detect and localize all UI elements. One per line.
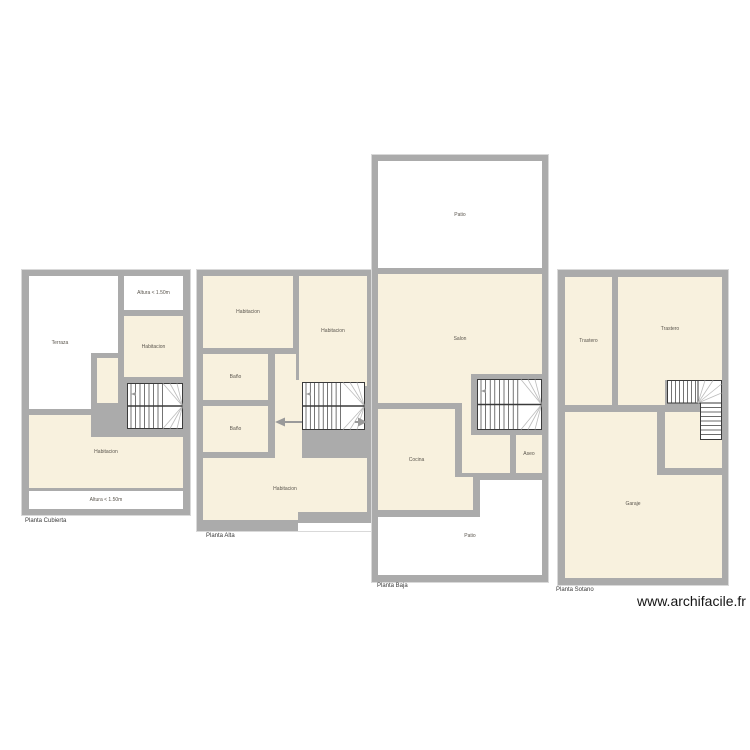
room-bano-2: Baño (203, 406, 268, 452)
room-label-garaje: Garaje (625, 501, 640, 507)
room-trastero-right-ext (618, 380, 665, 405)
floorplan-canvas: { "watermark": "www.archifacile.fr", "co… (0, 0, 750, 750)
room-label-aseo: Aseo (523, 451, 534, 457)
room-habitacion-tl: Habitacion (203, 276, 293, 348)
floorplan-planta-baja: Patio Salon Cocina Aseo Patio (372, 155, 548, 582)
room-terraza: Terraza (29, 276, 91, 409)
room-label-salon: Salon (454, 336, 467, 342)
room-corridor (462, 403, 471, 435)
room-patio-bottom-right (480, 480, 542, 575)
room-label-bano-2: Baño (230, 426, 242, 432)
room-habitacion-right: Habitacion (124, 316, 183, 377)
wall-step (298, 512, 372, 523)
room-label-bano-1: Baño (230, 374, 242, 380)
room-trastero-left: Trastero (565, 277, 612, 405)
room-altura-top: Altura < 1.50m (124, 276, 183, 310)
room-garaje-right (657, 475, 722, 578)
room-cocina-ext (455, 477, 473, 510)
room-label-cocina: Cocina (409, 457, 425, 463)
plan-title-sotano: Planta Sotano (556, 587, 594, 593)
staircase-l (667, 380, 722, 440)
room-hall (462, 435, 510, 473)
plan-title-alta: Planta Alta (206, 533, 235, 539)
floorplan-planta-alta: Habitacion Habitacion Baño Baño Habitaci… (197, 270, 372, 531)
room-label-terraza: Terraza (52, 340, 69, 346)
room-label-patio-top: Patio (454, 212, 465, 218)
room-label-habitacion-main: Habitacion (273, 486, 297, 492)
room-habitacion-tr: Habitacion (299, 276, 367, 386)
room-patio-bottom-left (378, 517, 480, 575)
room-corridor (97, 358, 118, 403)
watermark: www.archifacile.fr (637, 593, 746, 609)
room-cocina: Cocina (378, 409, 455, 510)
room-label-habitacion-tr: Habitacion (321, 328, 345, 334)
floorplan-planta-sotano: Trastero Trastero Garaje (558, 270, 728, 585)
room-label-habitacion-tl: Habitacion (236, 309, 260, 315)
room-label-garaje-wrap: Garaje (603, 498, 663, 510)
room-label-habitacion-right: Habitacion (142, 344, 166, 350)
room-corridor-upper (275, 354, 296, 380)
room-patio-top: Patio (378, 161, 542, 268)
floorplan-planta-cubierta: Terraza Altura < 1.50m Habitacion Habita… (22, 270, 190, 515)
room-aseo: Aseo (516, 435, 542, 473)
room-label-altura-top: Altura < 1.50m (137, 290, 170, 296)
staircase-u (477, 379, 542, 430)
room-label-altura-bottom: Altura < 1.50m (90, 497, 123, 503)
room-label-trastero-left: Trastero (579, 338, 597, 344)
room-label-patio-bottom: Patio (464, 533, 475, 539)
room-bano-1: Baño (203, 354, 268, 400)
exterior-notch (298, 523, 372, 531)
room-habitacion-main: Habitacion (203, 458, 367, 520)
room-trastero-right: Trastero (618, 277, 722, 380)
room-altura-bottom: Altura < 1.50m (29, 491, 183, 509)
arrow-left-icon (275, 418, 285, 427)
plan-title-baja: Planta Baja (377, 583, 408, 589)
room-garaje-left (565, 412, 657, 578)
stair-direction-arrows (272, 415, 369, 429)
room-label-habitacion-main: Habitacion (94, 449, 118, 455)
arrow-right-icon (358, 418, 367, 427)
plan-title-cubierta: Planta Cubierta (25, 518, 66, 524)
staircase-u (127, 383, 183, 429)
room-label-trastero-right: Trastero (661, 326, 679, 332)
room-label-patio-bottom-wrap: Patio (440, 530, 500, 542)
